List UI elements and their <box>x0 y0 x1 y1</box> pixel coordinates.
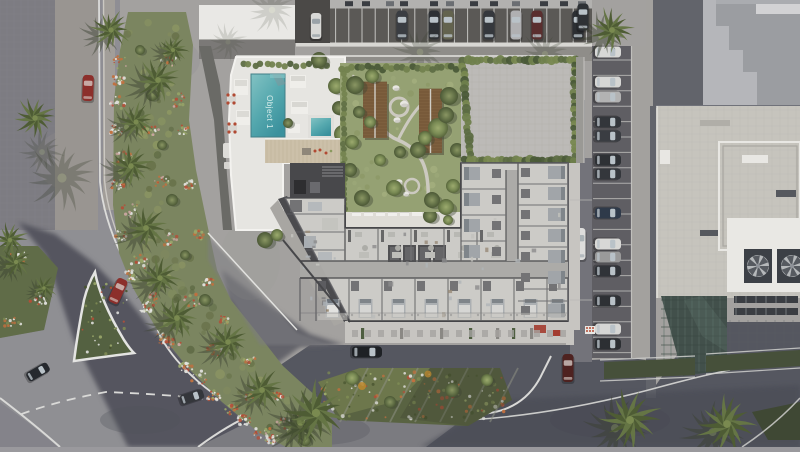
svg-text:Object 1: Object 1 <box>265 95 274 129</box>
